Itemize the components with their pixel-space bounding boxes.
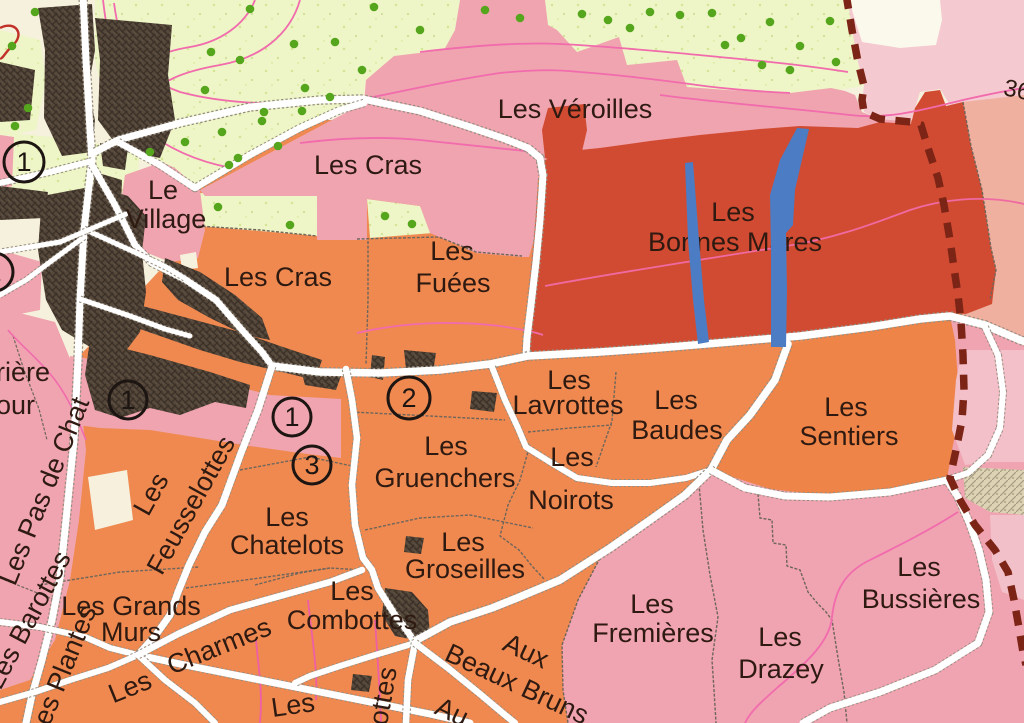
svg-text:Les Cras: Les Cras: [224, 262, 332, 292]
svg-text:Sentiers: Sentiers: [799, 421, 898, 451]
svg-text:Les: Les: [441, 527, 485, 557]
svg-text:Gruenchers: Gruenchers: [374, 463, 515, 493]
svg-text:Les: Les: [758, 622, 802, 652]
svg-text:Les: Les: [269, 687, 316, 723]
svg-text:Les: Les: [330, 576, 374, 606]
svg-text:2: 2: [401, 383, 416, 413]
svg-text:Lavrottes: Lavrottes: [512, 390, 623, 420]
svg-text:Les: Les: [630, 589, 674, 619]
svg-text:1: 1: [284, 402, 299, 432]
svg-text:Bonnes Mares: Bonnes Mares: [648, 227, 822, 257]
svg-text:1: 1: [0, 257, 2, 287]
svg-text:Fremières: Fremières: [592, 618, 714, 648]
svg-text:Village: Village: [126, 204, 207, 234]
svg-text:our: our: [0, 390, 35, 420]
svg-text:Les: Les: [711, 197, 755, 227]
svg-text:1: 1: [16, 147, 31, 177]
svg-text:Les Véroilles: Les Véroilles: [498, 94, 653, 124]
svg-text:Les: Les: [897, 552, 941, 582]
svg-text:Les: Les: [265, 502, 309, 532]
svg-text:Baudes: Baudes: [631, 415, 723, 445]
svg-text:Chatelots: Chatelots: [230, 530, 344, 560]
svg-text:Les: Les: [550, 442, 594, 472]
svg-text:Noirots: Noirots: [528, 485, 614, 515]
svg-text:Combottes: Combottes: [287, 605, 418, 635]
svg-text:Les: Les: [824, 392, 868, 422]
svg-text:Bussières: Bussières: [862, 584, 981, 614]
svg-text:Groseilles: Groseilles: [405, 554, 525, 584]
svg-text:Le: Le: [148, 175, 178, 205]
svg-text:1: 1: [120, 385, 135, 415]
svg-text:Murs: Murs: [101, 617, 161, 647]
svg-text:Les: Les: [654, 385, 698, 415]
svg-text:Drazey: Drazey: [738, 654, 824, 684]
svg-text:Les: Les: [424, 431, 468, 461]
svg-text:Fuées: Fuées: [415, 268, 490, 298]
svg-text:rière: rière: [0, 357, 50, 387]
svg-text:Les: Les: [430, 236, 474, 266]
svg-text:Les Cras: Les Cras: [314, 150, 422, 180]
svg-text:3: 3: [304, 450, 319, 480]
